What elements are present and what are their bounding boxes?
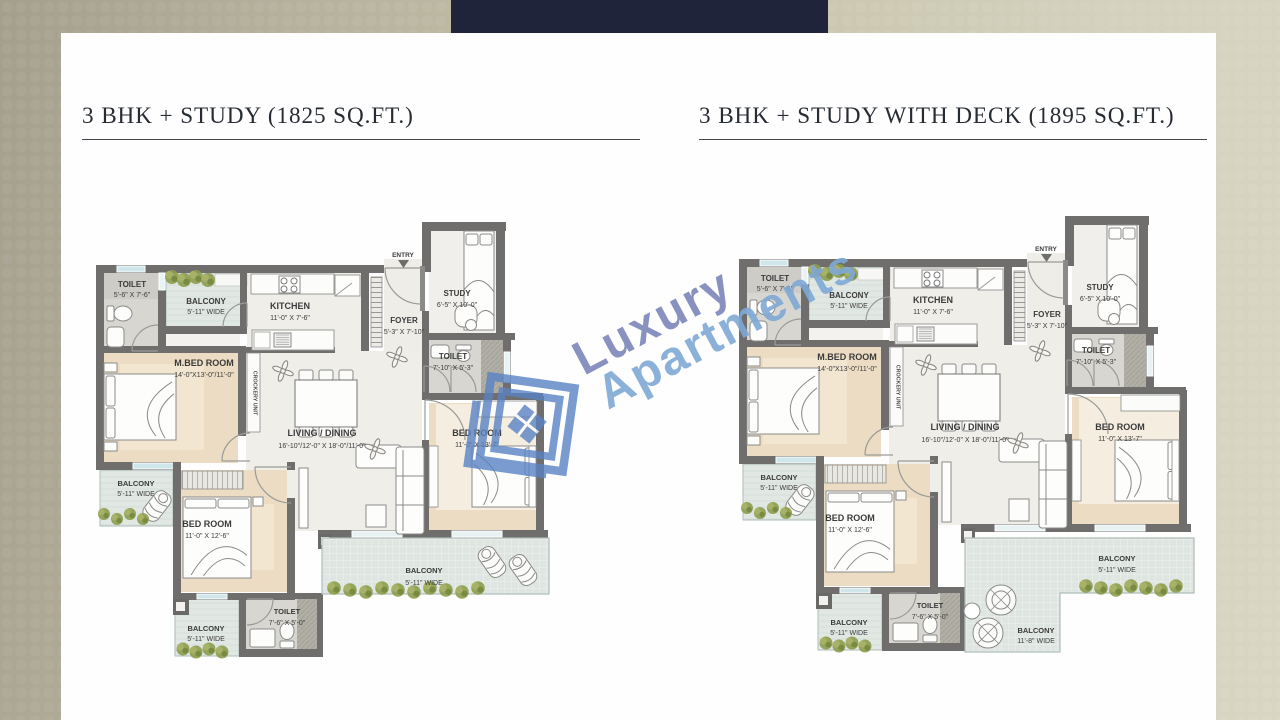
svg-text:5'-3" X 7'-10": 5'-3" X 7'-10" xyxy=(1027,323,1068,330)
svg-text:7'-6" X 5'-0": 7'-6" X 5'-0" xyxy=(269,620,306,627)
svg-text:STUDY: STUDY xyxy=(443,289,471,298)
svg-text:BALCONY: BALCONY xyxy=(1098,554,1135,563)
svg-text:TOILET: TOILET xyxy=(439,352,467,361)
svg-text:11'-0" X 12'-6": 11'-0" X 12'-6" xyxy=(828,527,872,534)
svg-text:7'-10" X 5'-3": 7'-10" X 5'-3" xyxy=(1076,359,1117,366)
svg-text:ENTRY: ENTRY xyxy=(1035,246,1057,253)
svg-text:LIVING / DINING: LIVING / DINING xyxy=(930,422,999,432)
svg-text:BALCONY: BALCONY xyxy=(186,297,226,306)
svg-text:BALCONY: BALCONY xyxy=(187,624,224,633)
svg-text:5'-11" WIDE: 5'-11" WIDE xyxy=(760,485,798,492)
svg-text:16'-10"/12'-0" X 18'-0"/11'-0": 16'-10"/12'-0" X 18'-0"/11'-0" xyxy=(921,437,1009,444)
svg-text:BALCONY: BALCONY xyxy=(117,479,154,488)
svg-text:LIVING / DINING: LIVING / DINING xyxy=(287,428,356,438)
svg-text:KITCHEN: KITCHEN xyxy=(913,295,953,305)
svg-text:M.BED ROOM: M.BED ROOM xyxy=(174,358,234,368)
svg-text:11'-8" WIDE: 11'-8" WIDE xyxy=(1017,638,1055,645)
svg-text:5'-11" WIDE: 5'-11" WIDE xyxy=(117,491,155,498)
svg-text:7'-6" X 5'-0": 7'-6" X 5'-0" xyxy=(912,614,949,621)
svg-text:BED ROOM: BED ROOM xyxy=(825,513,875,523)
svg-text:5'-11" WIDE: 5'-11" WIDE xyxy=(405,580,443,587)
svg-text:TOILET: TOILET xyxy=(118,280,146,289)
svg-text:M.BED ROOM: M.BED ROOM xyxy=(817,352,877,362)
svg-text:14'-0"X13'-0"/11'-0": 14'-0"X13'-0"/11'-0" xyxy=(174,372,234,379)
svg-text:11'-0" X 13'-7": 11'-0" X 13'-7" xyxy=(1098,436,1142,443)
svg-text:6'-5" X 10'-0": 6'-5" X 10'-0" xyxy=(437,302,478,309)
svg-text:5'-11" WIDE: 5'-11" WIDE xyxy=(187,636,225,643)
svg-text:11'-0" X 7'-6": 11'-0" X 7'-6" xyxy=(270,315,310,322)
svg-text:FOYER: FOYER xyxy=(1033,310,1061,319)
svg-text:5'-11" WIDE: 5'-11" WIDE xyxy=(830,630,868,637)
svg-text:16'-10"/12'-0" X 18'-0"/11'-0": 16'-10"/12'-0" X 18'-0"/11'-0" xyxy=(278,443,366,450)
svg-text:11'-0" X 7'-6": 11'-0" X 7'-6" xyxy=(913,309,953,316)
svg-text:5'-6" X 7'-6": 5'-6" X 7'-6" xyxy=(114,292,151,299)
svg-text:BALCONY: BALCONY xyxy=(405,566,442,575)
svg-text:7'-10" X 5'-3": 7'-10" X 5'-3" xyxy=(433,365,474,372)
svg-text:TOILET: TOILET xyxy=(274,607,301,616)
svg-text:5'-11" WIDE: 5'-11" WIDE xyxy=(1098,567,1136,574)
svg-text:5'-11" WIDE: 5'-11" WIDE xyxy=(830,303,868,310)
svg-text:CROCKERY UNIT: CROCKERY UNIT xyxy=(252,371,258,416)
svg-text:BALCONY: BALCONY xyxy=(830,618,867,627)
svg-text:KITCHEN: KITCHEN xyxy=(270,301,310,311)
svg-text:STUDY: STUDY xyxy=(1086,283,1114,292)
svg-text:CROCKERY UNIT: CROCKERY UNIT xyxy=(895,365,901,410)
svg-text:BALCONY: BALCONY xyxy=(1017,626,1054,635)
svg-text:6'-5" X 10'-0": 6'-5" X 10'-0" xyxy=(1080,296,1121,303)
svg-text:BALCONY: BALCONY xyxy=(760,473,797,482)
svg-text:BED ROOM: BED ROOM xyxy=(1095,422,1145,432)
svg-text:5'-11" WIDE: 5'-11" WIDE xyxy=(187,309,225,316)
svg-text:TOILET: TOILET xyxy=(1082,346,1110,355)
svg-text:BED ROOM: BED ROOM xyxy=(182,519,232,529)
svg-text:5'-3" X 7'-10": 5'-3" X 7'-10" xyxy=(384,329,425,336)
svg-text:14'-0"X13'-0"/11'-0": 14'-0"X13'-0"/11'-0" xyxy=(817,366,877,373)
svg-text:ENTRY: ENTRY xyxy=(392,252,414,259)
svg-text:11'-0" X 12'-6": 11'-0" X 12'-6" xyxy=(185,533,229,540)
svg-text:TOILET: TOILET xyxy=(917,601,944,610)
svg-text:FOYER: FOYER xyxy=(390,316,418,325)
